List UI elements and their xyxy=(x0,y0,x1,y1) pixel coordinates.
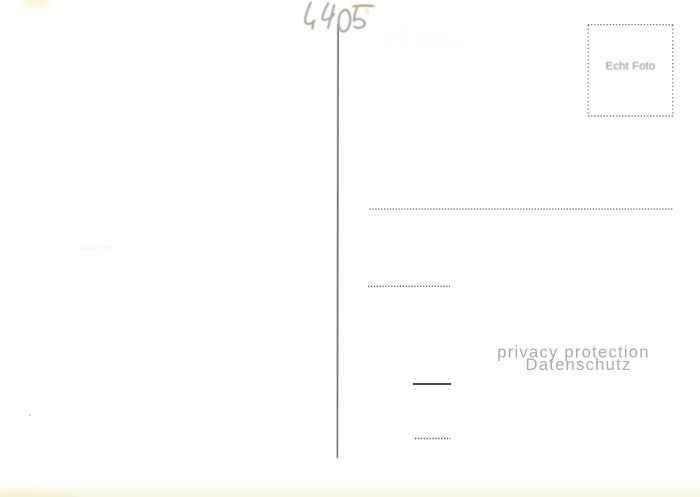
svg-text:Datenschutz: Datenschutz xyxy=(526,355,632,374)
svg-text:Echt Foto: Echt Foto xyxy=(606,61,656,73)
